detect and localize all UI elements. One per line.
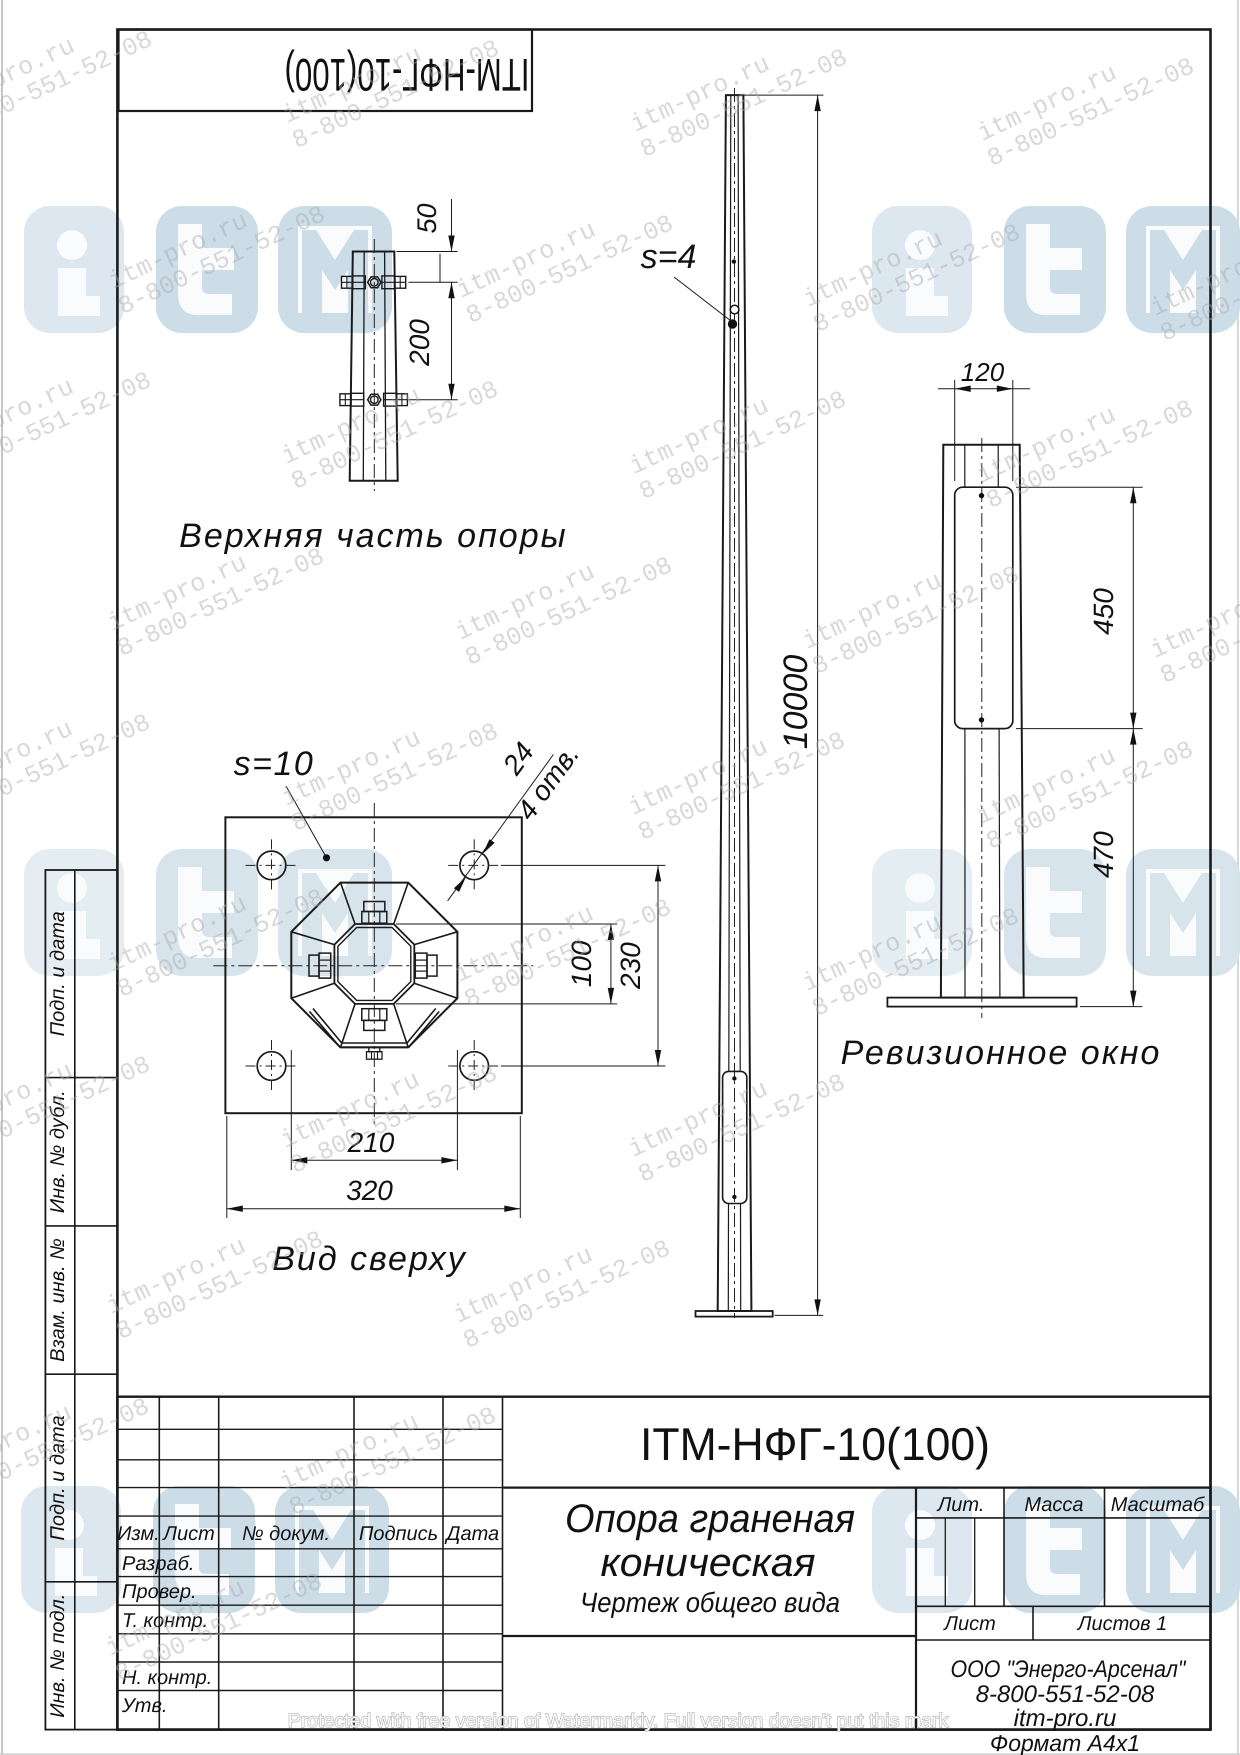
svg-text:Подпись: Подпись — [359, 1523, 438, 1545]
svg-text:Дата: Дата — [444, 1523, 499, 1545]
svg-text:50: 50 — [412, 203, 442, 233]
svg-text:Утв.: Утв. — [121, 1695, 167, 1717]
svg-text:№ докум.: № докум. — [242, 1523, 330, 1545]
svg-text:10000: 10000 — [777, 655, 815, 750]
svg-text:8-800-551-52-08: 8-800-551-52-08 — [0, 366, 156, 487]
svg-text:120: 120 — [961, 357, 1005, 387]
svg-text:Масштаб: Масштаб — [1111, 1494, 1205, 1516]
svg-text:8-800-551-52-08: 8-800-551-52-08 — [976, 1681, 1155, 1708]
svg-text:Подп. и дата: Подп. и дата — [47, 911, 69, 1036]
svg-text:ООО "Энерго-Арсенал": ООО "Энерго-Арсенал" — [951, 1656, 1187, 1683]
svg-text:Чертеж общего вида: Чертеж общего вида — [580, 1587, 840, 1618]
svg-text:Масса: Масса — [1024, 1494, 1083, 1516]
svg-text:Ревизионное окно: Ревизионное окно — [841, 1034, 1162, 1072]
svg-text:Изм.: Изм. — [117, 1523, 160, 1545]
svg-text:Разраб.: Разраб. — [122, 1553, 194, 1575]
svg-text:Лит.: Лит. — [936, 1494, 985, 1516]
svg-text:320: 320 — [346, 1175, 393, 1206]
svg-text:itm-pro.ru: itm-pro.ru — [1014, 1705, 1117, 1732]
svg-text:Взам. инв. №: Взам. инв. № — [47, 1238, 69, 1362]
svg-text:470: 470 — [1088, 831, 1119, 878]
svg-text:ITM-НФГ-10(100): ITM-НФГ-10(100) — [640, 1418, 990, 1470]
svg-text:200: 200 — [404, 319, 435, 367]
svg-text:Инв. № подл.: Инв. № подл. — [47, 1594, 69, 1718]
svg-text:коническая: коническая — [601, 1541, 816, 1585]
svg-text:Protected with free version of: Protected with free version of Watermark… — [288, 1710, 949, 1732]
svg-text:230: 230 — [615, 942, 646, 990]
svg-text:Опора граненая: Опора граненая — [565, 1497, 855, 1541]
svg-text:450: 450 — [1088, 588, 1119, 635]
svg-text:Формат А4х1: Формат А4х1 — [990, 1730, 1140, 1755]
svg-text:8-800-551-52-08: 8-800-551-52-08 — [0, 1050, 155, 1171]
svg-text:Лист: Лист — [161, 1523, 215, 1545]
svg-text:Лист: Лист — [942, 1613, 996, 1635]
svg-text:8-800-551-52-08: 8-800-551-52-08 — [0, 25, 157, 146]
svg-text:Листов 1: Листов 1 — [1076, 1613, 1168, 1635]
svg-text:8-800-551-52-08: 8-800-551-52-08 — [0, 708, 155, 829]
